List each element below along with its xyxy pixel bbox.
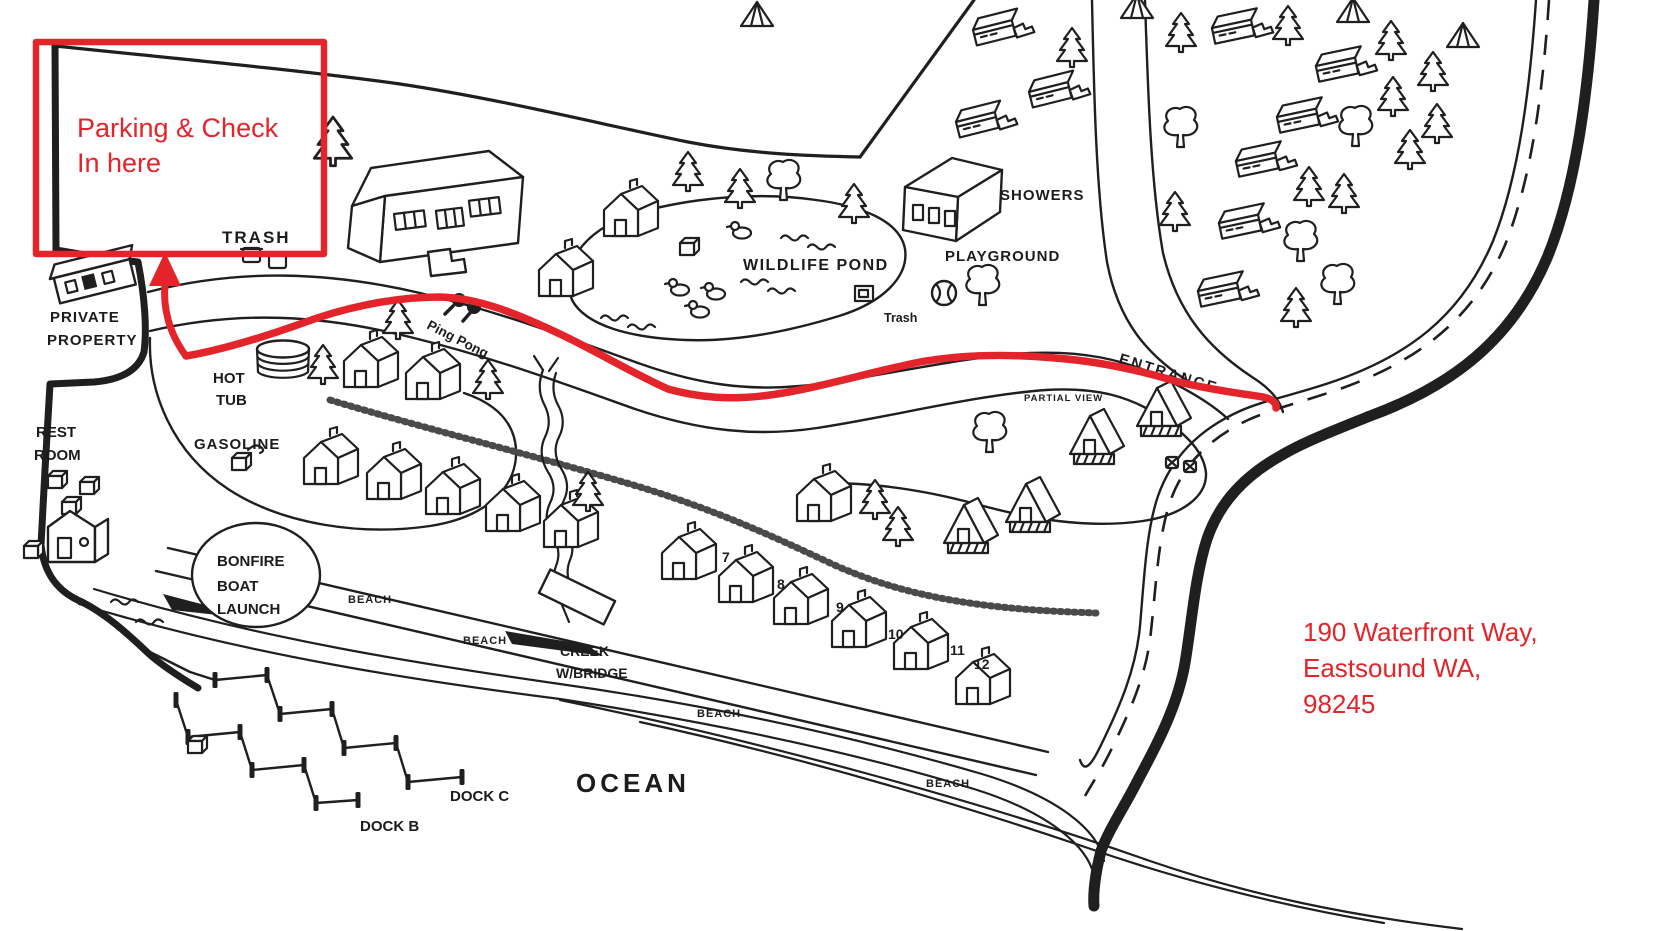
bonfire-label: LAUNCH — [217, 601, 280, 618]
cabin-icon — [426, 457, 480, 514]
deciduous-tree-icon — [973, 412, 1006, 452]
parking-note-line2: In here — [77, 148, 161, 178]
shed-cube-icon — [48, 471, 67, 488]
cabin-number: 11 — [950, 642, 965, 658]
shed-cube-icon — [80, 477, 99, 494]
cabin-icon — [344, 330, 398, 387]
aframe-cabin-icon — [1006, 477, 1060, 532]
address-line3: 98245 — [1303, 689, 1375, 719]
small-hut-icon — [680, 238, 699, 255]
pine-tree-icon — [1273, 6, 1303, 45]
camper-icon — [971, 6, 1035, 47]
pine-tree-icon — [308, 345, 338, 384]
camper-icon — [1234, 139, 1298, 179]
cabin-number: 7 — [722, 549, 730, 565]
dock-post — [356, 792, 361, 808]
trash-can-icon — [855, 286, 873, 301]
parking-note-line1: Parking & Check — [77, 113, 279, 143]
trash-can-label: Trash — [884, 311, 917, 325]
hot-tub-icon — [257, 341, 309, 378]
ocean-label: OCEAN — [576, 768, 690, 798]
cabin-icon — [604, 179, 658, 236]
creek-bridge — [539, 570, 615, 625]
hot-tub-label: TUB — [216, 392, 247, 409]
hot-tub-label: HOT — [213, 370, 245, 387]
tents — [741, 0, 1479, 47]
camper-icon — [1196, 269, 1260, 309]
rest-room-label: REST — [36, 424, 76, 441]
camper-icon — [1027, 68, 1091, 109]
campground-map-screenshot: TRASH PRIVATE PROPERTY REST ROOM HOT TUB… — [0, 0, 1653, 931]
showers-building — [903, 158, 1002, 241]
shoreline-wave — [94, 589, 1104, 861]
interior-road-west-edge — [1092, 0, 1194, 385]
address-line1: 190 Waterfront Way, — [1303, 617, 1538, 647]
camper-icon — [1210, 6, 1274, 46]
camper-icon — [1314, 44, 1378, 84]
dock-b-label: DOCK B — [360, 818, 419, 835]
partial-view-label: PARTIAL VIEW — [1024, 393, 1103, 404]
dock-post — [265, 667, 270, 683]
private-property-label: PROPERTY — [47, 332, 138, 349]
pine-tree-icon — [1281, 288, 1311, 327]
dock-post — [302, 757, 307, 773]
cabin-number: 8 — [777, 576, 785, 592]
pine-tree-icon — [1160, 192, 1190, 231]
dock-post — [314, 795, 319, 811]
dock-c-label: DOCK C — [450, 788, 509, 805]
private-property-label: PRIVATE — [50, 309, 120, 326]
fence-line — [860, 0, 974, 157]
aframe-cabin-icon — [1070, 409, 1124, 464]
pine-tree-icon — [1057, 28, 1087, 67]
water-ripple-icon — [111, 600, 138, 605]
arrow-stem — [165, 284, 186, 356]
deciduous-tree-icon — [1339, 106, 1372, 146]
dock-post — [213, 672, 218, 688]
dock-post — [342, 740, 347, 756]
dock-post — [278, 706, 283, 722]
float-box-icon — [188, 736, 207, 753]
rest-room-label: ROOM — [34, 447, 81, 464]
creek-label: CREEK — [560, 643, 609, 659]
beach-label: BEACH — [697, 708, 741, 720]
pine-tree-icon — [473, 360, 503, 399]
cabin-icon — [797, 464, 851, 521]
cabin-number: 10 — [888, 626, 904, 642]
shed-cube-icon — [24, 541, 43, 558]
lodge-building — [348, 151, 523, 276]
aframe-cabins — [944, 381, 1191, 553]
tent-icon — [1337, 0, 1369, 22]
pine-tree-icon — [1422, 104, 1452, 143]
beach-label: BEACH — [348, 594, 392, 606]
creek-label: W/BRIDGE — [556, 665, 628, 681]
cabin-icon — [406, 342, 460, 399]
deciduous-tree-icon — [1284, 221, 1317, 261]
camper-icon — [1217, 201, 1281, 241]
dock-post — [238, 724, 243, 740]
beach-waves — [79, 589, 1462, 929]
showers-label: SHOWERS — [1000, 187, 1085, 204]
deciduous-tree-icon — [1164, 107, 1197, 147]
camper-icon — [954, 98, 1018, 139]
beach-label: BEACH — [463, 635, 507, 647]
address-line2: Eastsound WA, — [1303, 653, 1481, 683]
pine-tree-icon — [1376, 21, 1406, 60]
tent-icon — [1447, 23, 1479, 47]
lodge-steps — [428, 249, 466, 276]
dock-post — [330, 701, 335, 717]
camper-icon — [1275, 95, 1339, 135]
playground-label: PLAYGROUND — [945, 248, 1060, 265]
dock-post — [394, 735, 399, 751]
pine-tree-icon — [1166, 13, 1196, 52]
pine-tree-icon — [1329, 174, 1359, 213]
bonfire-label: BONFIRE — [217, 553, 285, 570]
cabin-number: 9 — [836, 599, 844, 615]
playground-ball-icon — [932, 281, 956, 305]
campground-map: TRASH PRIVATE PROPERTY REST ROOM HOT TUB… — [0, 0, 1653, 931]
coastline — [1094, 0, 1594, 906]
docks — [150, 652, 465, 811]
gas-cube — [232, 453, 251, 470]
tent-icon — [741, 2, 773, 26]
dock-post — [460, 769, 465, 785]
creek-headwater-fork — [534, 356, 558, 371]
pine-tree-icon — [1418, 52, 1448, 91]
wildlife-pond-label: WILDLIFE POND — [743, 257, 889, 274]
dock-post — [406, 774, 411, 790]
trash-label: TRASH — [222, 228, 291, 247]
pine-tree-icon — [1395, 130, 1425, 169]
playground-tree-icon — [966, 265, 999, 305]
pine-tree-icon — [314, 117, 352, 166]
shore-thick-line — [1094, 0, 1594, 906]
restroom-building — [24, 471, 108, 562]
shoreline-wave — [640, 722, 1384, 923]
pine-tree-icon — [1294, 167, 1324, 206]
cabin-icon — [486, 474, 540, 531]
pine-tree-icon — [839, 184, 869, 223]
bonfire-label: BOAT — [217, 578, 258, 595]
cabin-icon — [304, 427, 358, 484]
tent-icon — [1121, 0, 1153, 18]
pine-tree-icon — [725, 169, 755, 208]
pine-tree-icon — [1378, 77, 1408, 116]
cabin-number: 12 — [974, 656, 990, 672]
cabin-7-icon — [662, 522, 716, 579]
pine-tree-icon — [673, 152, 703, 191]
gasoline-label: GASOLINE — [194, 436, 280, 453]
dock-post — [250, 762, 255, 778]
aframe-cabin-icon — [944, 498, 998, 553]
beach-label: BEACH — [926, 778, 970, 790]
dock-post — [174, 692, 179, 708]
deciduous-tree-icon — [767, 160, 800, 200]
cabin-icon — [367, 442, 421, 499]
pine-tree-icon — [383, 300, 413, 339]
deciduous-tree-icon — [1321, 264, 1354, 304]
